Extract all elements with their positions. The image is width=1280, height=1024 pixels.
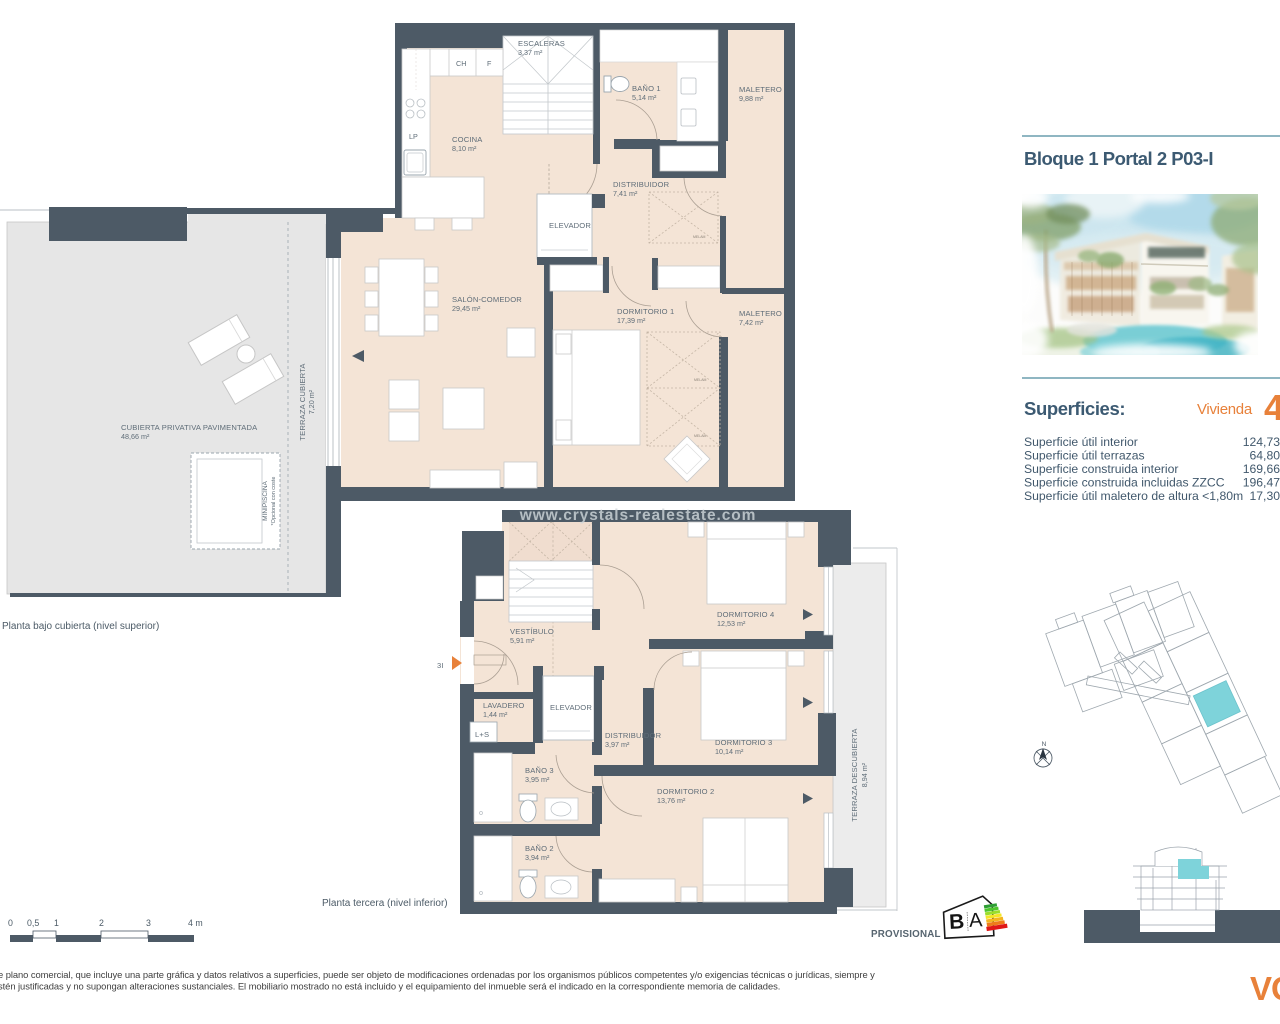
- svg-text:7,42 m²: 7,42 m²: [739, 318, 764, 327]
- svg-text:TERRAZA CUBIERTA: TERRAZA CUBIERTA: [298, 363, 307, 441]
- svg-text:10,14 m²: 10,14 m²: [715, 747, 744, 756]
- svg-text:Superficie construida interior: Superficie construida interior: [1024, 462, 1178, 476]
- svg-text:3,97 m²: 3,97 m²: [605, 740, 630, 749]
- svg-text:7,41 m²: 7,41 m²: [613, 189, 638, 198]
- svg-text:169,66: 169,66: [1243, 462, 1280, 476]
- svg-text:BAÑO 1: BAÑO 1: [632, 84, 661, 93]
- svg-text:ESCALERAS: ESCALERAS: [518, 39, 565, 48]
- svg-text:COCINA: COCINA: [452, 135, 483, 144]
- svg-text:MALETERO: MALETERO: [739, 85, 782, 94]
- svg-text:3I: 3I: [437, 661, 444, 670]
- svg-text:2: 2: [99, 918, 104, 928]
- svg-text:MELAM: MELAM: [694, 378, 707, 382]
- svg-text:BAÑO 2: BAÑO 2: [525, 844, 554, 853]
- svg-text:4 m: 4 m: [188, 918, 203, 928]
- svg-text:DORMITORIO 2: DORMITORIO 2: [657, 787, 714, 796]
- svg-text:0,5: 0,5: [27, 918, 39, 928]
- svg-text:TERRAZA DESCUBIERTA: TERRAZA DESCUBIERTA: [850, 728, 859, 822]
- svg-text:Vivienda: Vivienda: [1197, 401, 1253, 418]
- svg-text:4: 4: [1264, 387, 1280, 428]
- svg-text:stén justificadas y no suponga: stén justificadas y no supongan alteraci…: [0, 981, 780, 992]
- svg-text:3,37 m²: 3,37 m²: [518, 48, 543, 57]
- svg-text:Superficie útil interior: Superficie útil interior: [1024, 435, 1138, 449]
- svg-text:29,45 m²: 29,45 m²: [452, 304, 481, 313]
- svg-text:ELEVADOR: ELEVADOR: [550, 703, 592, 712]
- svg-text:e plano comercial, que incluye: e plano comercial, que incluye una parte…: [0, 969, 875, 980]
- svg-text:VESTÍBULO: VESTÍBULO: [510, 627, 554, 636]
- svg-text:MELAM: MELAM: [693, 235, 706, 239]
- svg-text:3: 3: [146, 918, 151, 928]
- svg-text:ELEVADOR: ELEVADOR: [549, 221, 591, 230]
- svg-text:7,20 m²: 7,20 m²: [307, 389, 316, 414]
- svg-text:L+S: L+S: [475, 730, 489, 739]
- svg-text:DISTRIBUIDOR: DISTRIBUIDOR: [605, 731, 662, 740]
- svg-text:17,30: 17,30: [1250, 489, 1280, 503]
- svg-text:64,80: 64,80: [1250, 449, 1280, 463]
- svg-text:DISTRIBUIDOR: DISTRIBUIDOR: [613, 180, 670, 189]
- svg-text:Planta bajo cubierta (nivel su: Planta bajo cubierta (nivel superior): [2, 621, 159, 632]
- svg-text:13,76 m²: 13,76 m²: [657, 796, 686, 805]
- svg-text:1,44 m²: 1,44 m²: [483, 710, 508, 719]
- svg-text:A: A: [968, 909, 983, 932]
- svg-text:9,88 m²: 9,88 m²: [739, 94, 764, 103]
- svg-text:DORMITORIO 1: DORMITORIO 1: [617, 307, 674, 316]
- svg-text:B: B: [949, 910, 965, 934]
- svg-text:N: N: [1042, 741, 1047, 748]
- svg-text:SALÓN-COMEDOR: SALÓN-COMEDOR: [452, 295, 522, 304]
- svg-text:Superficie construida incluida: Superficie construida incluidas ZZCC: [1024, 476, 1225, 490]
- svg-text:124,73: 124,73: [1243, 435, 1280, 449]
- svg-text:PROVISIONAL: PROVISIONAL: [871, 929, 941, 940]
- svg-text:Bloque 1 Portal 2 P03-I: Bloque 1 Portal 2 P03-I: [1024, 148, 1213, 169]
- svg-text:12,53 m²: 12,53 m²: [717, 619, 746, 628]
- svg-text:5,91 m²: 5,91 m²: [510, 636, 535, 645]
- svg-text:Superficies:: Superficies:: [1024, 398, 1125, 419]
- svg-text:3,94 m²: 3,94 m²: [525, 853, 550, 862]
- svg-text:BAÑO 3: BAÑO 3: [525, 766, 554, 775]
- svg-text:LP: LP: [409, 132, 418, 141]
- svg-text:DORMITORIO 4: DORMITORIO 4: [717, 610, 774, 619]
- svg-text:8,10 m²: 8,10 m²: [452, 144, 477, 153]
- svg-text:MALETERO: MALETERO: [739, 309, 782, 318]
- svg-text:0: 0: [8, 918, 13, 928]
- svg-text:www.crystals-realestate.com: www.crystals-realestate.com: [519, 507, 757, 524]
- svg-text:5,14 m²: 5,14 m²: [632, 93, 657, 102]
- svg-text:LAVADERO: LAVADERO: [483, 701, 524, 710]
- svg-text:CUBIERTA PRIVATIVA PAVIMENTADA: CUBIERTA PRIVATIVA PAVIMENTADA: [121, 423, 258, 432]
- svg-text:MINIPISCINA: MINIPISCINA: [262, 480, 269, 520]
- svg-text:8,94 m²: 8,94 m²: [860, 762, 869, 787]
- svg-text:Superficie útil terrazas: Superficie útil terrazas: [1024, 449, 1145, 463]
- svg-text:3,95 m²: 3,95 m²: [525, 775, 550, 784]
- svg-text:F: F: [487, 59, 492, 68]
- svg-text:VO: VO: [1250, 970, 1280, 1007]
- svg-text:CH: CH: [456, 59, 466, 68]
- svg-text:*Opcional con coste: *Opcional con coste: [271, 477, 277, 526]
- svg-text:MELAM: MELAM: [694, 434, 707, 438]
- svg-text:Superficie útil maletero de al: Superficie útil maletero de altura <1,80…: [1024, 489, 1243, 503]
- svg-text:Planta tercera (nivel inferior: Planta tercera (nivel inferior): [322, 898, 448, 909]
- svg-text:17,39 m²: 17,39 m²: [617, 316, 646, 325]
- svg-text:48,66 m²: 48,66 m²: [121, 432, 150, 441]
- svg-text:1: 1: [54, 918, 59, 928]
- svg-text:DORMITORIO 3: DORMITORIO 3: [715, 738, 772, 747]
- svg-text:196,47: 196,47: [1243, 476, 1280, 490]
